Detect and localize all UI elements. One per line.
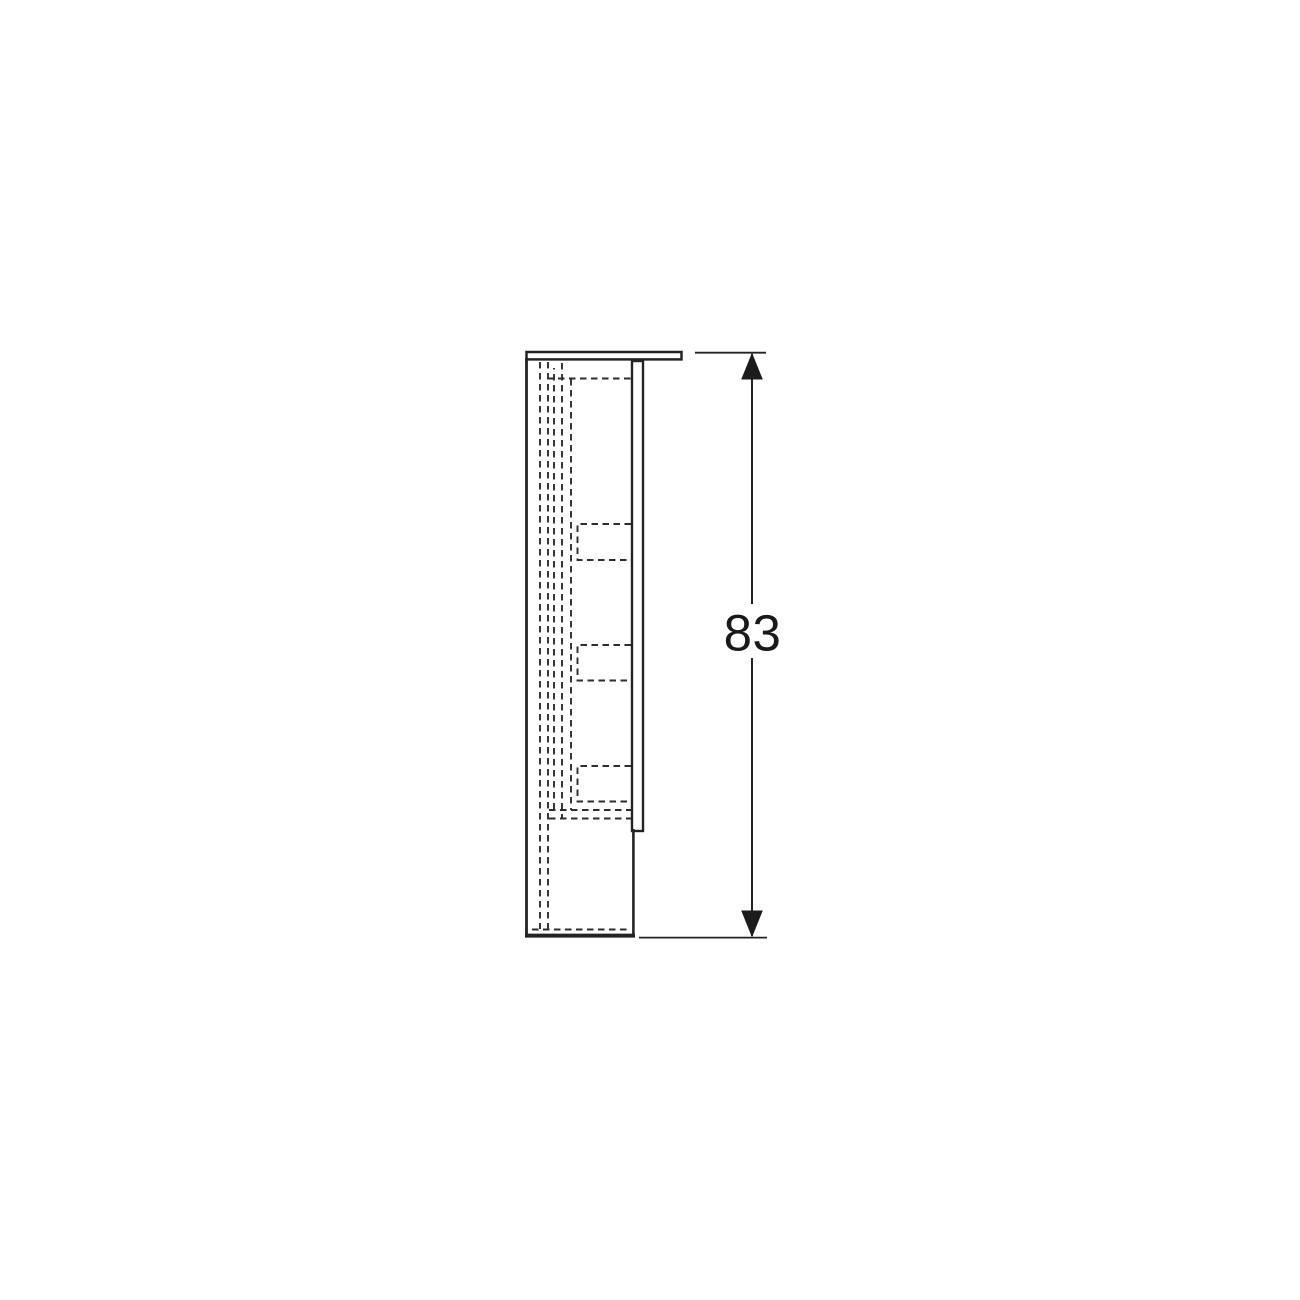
- shelf-outline-3: [578, 766, 632, 802]
- arrow-up-icon: [741, 353, 763, 380]
- shelf-outline-2: [578, 645, 632, 681]
- dimension-label: 83: [724, 605, 782, 662]
- hidden-edge-lines: [532, 362, 631, 930]
- arrow-down-icon: [741, 911, 763, 938]
- cabinet-top-light-canopy: [527, 352, 682, 359]
- shelf-outline-1: [578, 524, 632, 560]
- drawing-canvas: 83: [0, 0, 1300, 1300]
- height-dimension: 83: [639, 353, 781, 938]
- cabinet-side-elevation-drawing: 83: [0, 0, 1300, 1300]
- cabinet-door-profile: [632, 361, 643, 831]
